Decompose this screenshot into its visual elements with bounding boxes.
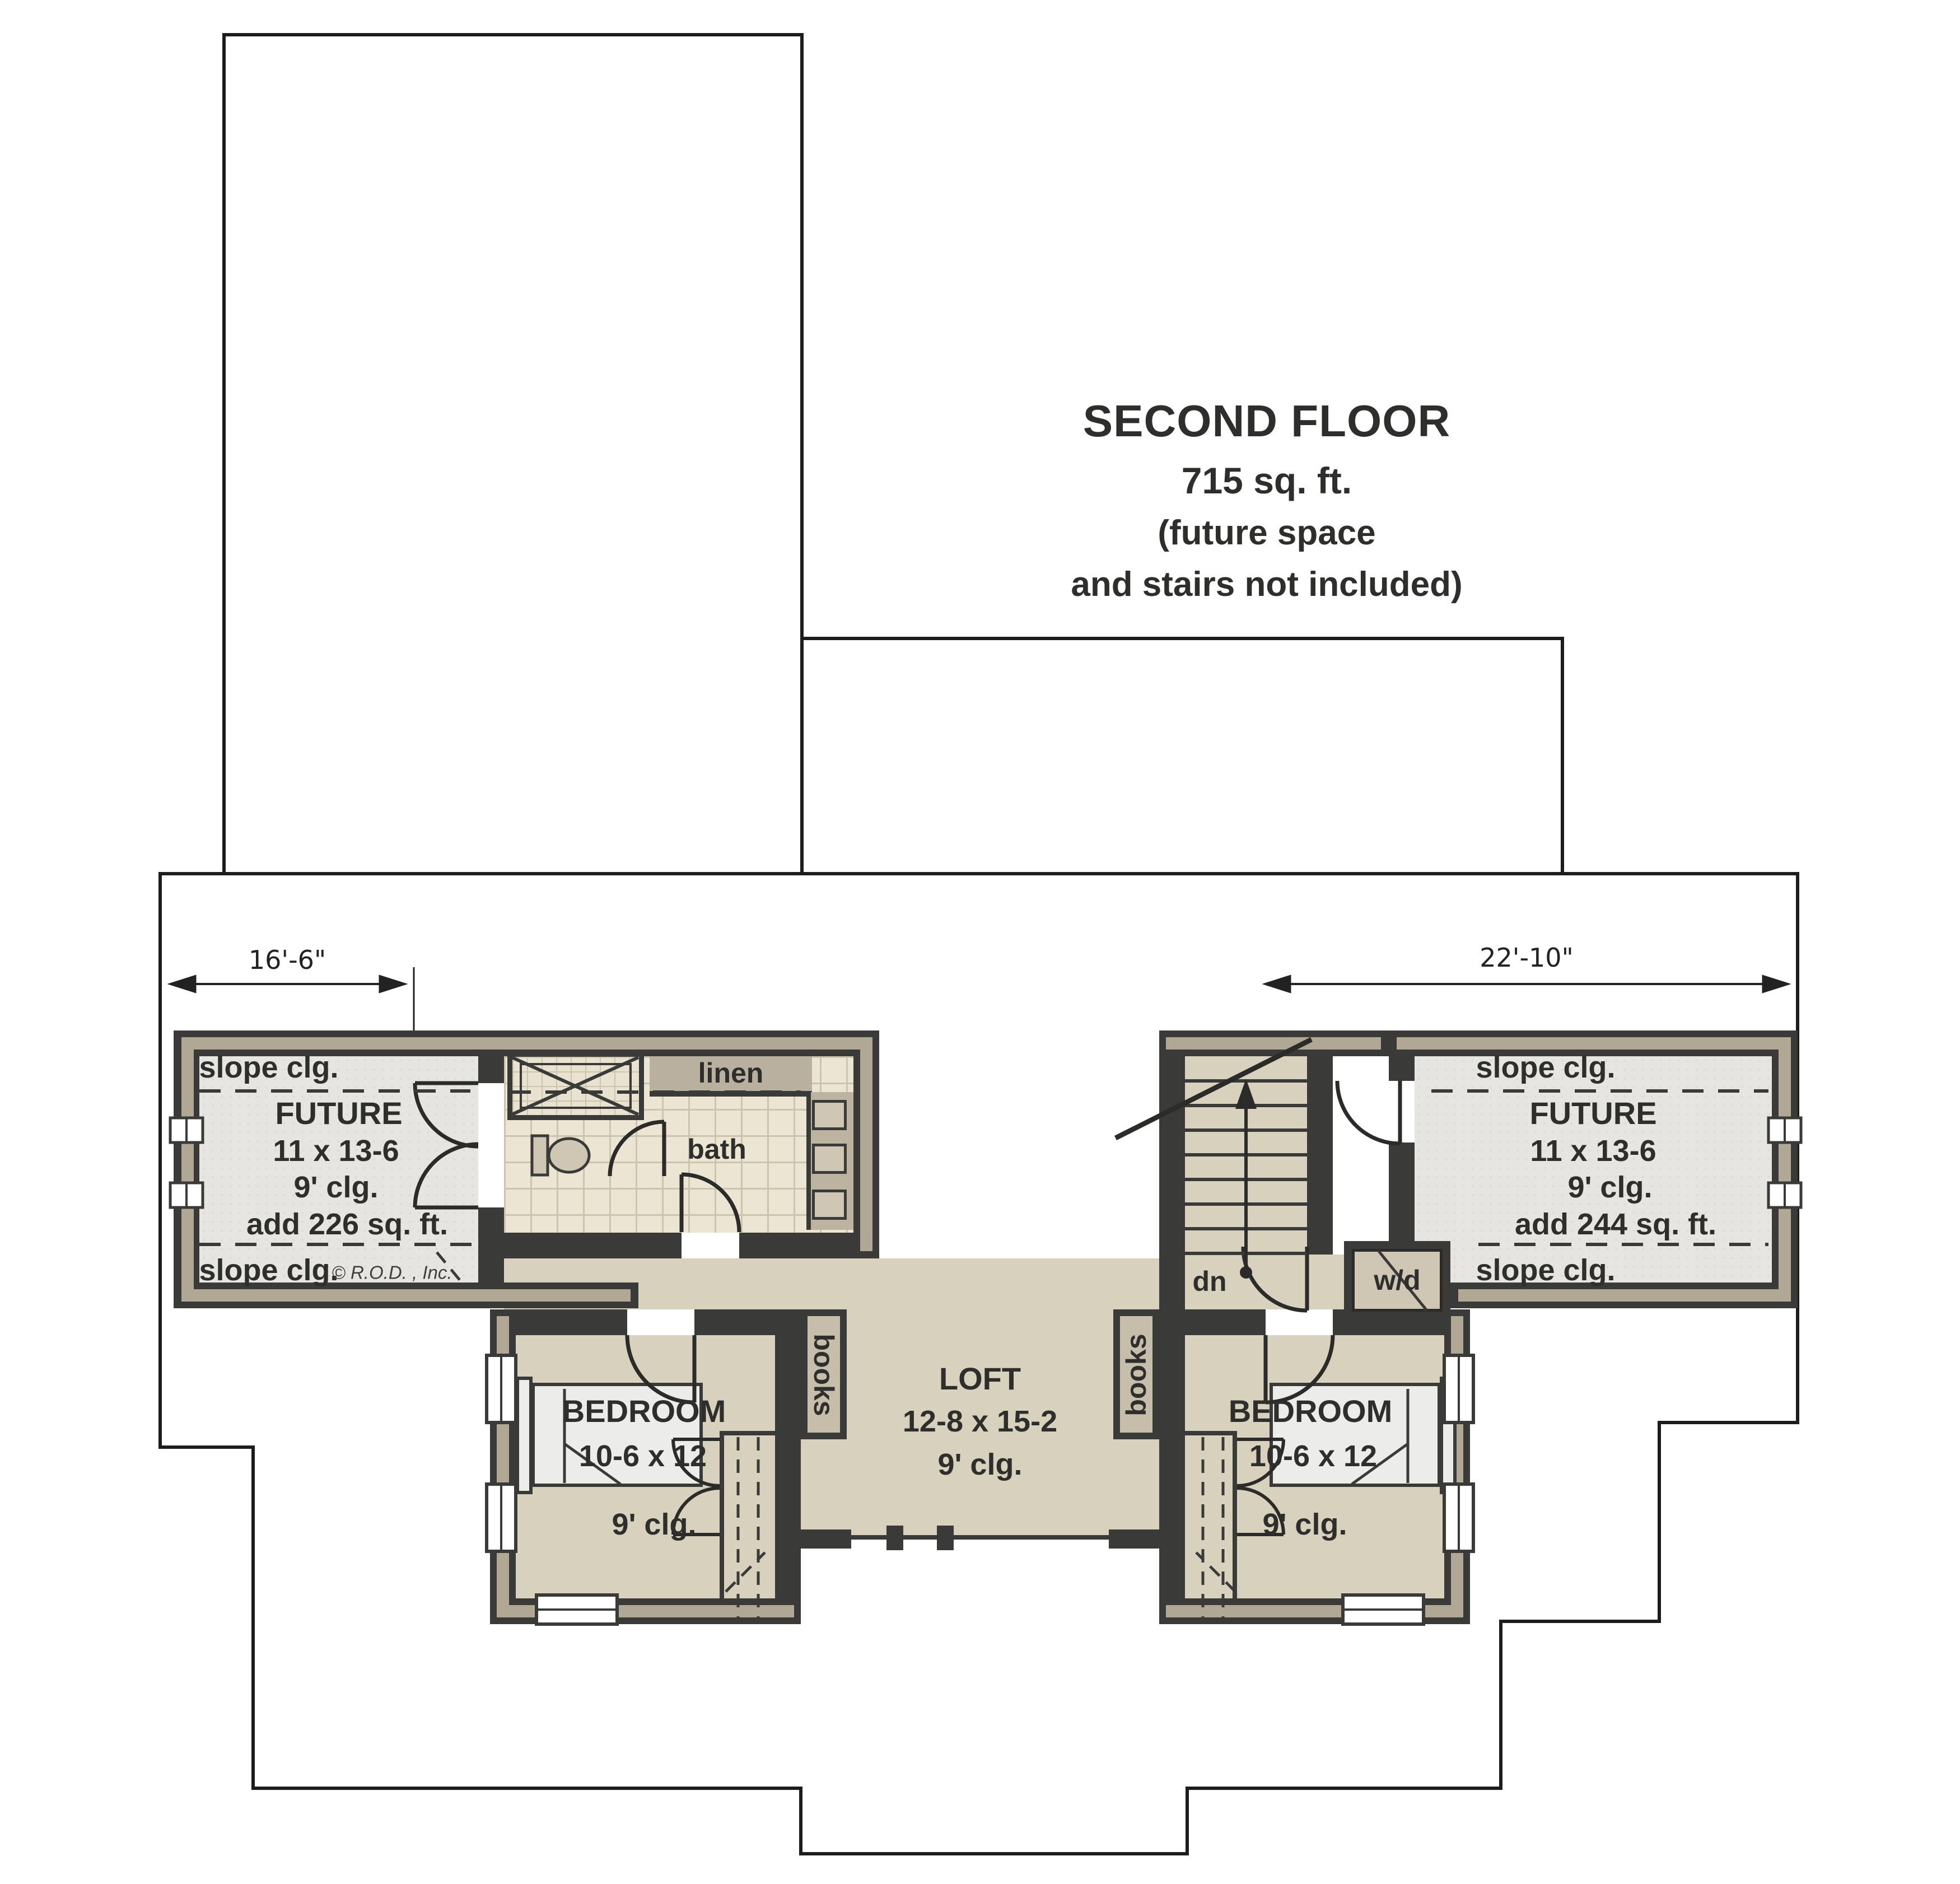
bath-label: bath	[687, 1135, 746, 1163]
door-future-left-double	[415, 1083, 478, 1207]
dimension-left-text: 16'-6"	[249, 947, 326, 973]
door-laundry	[1243, 1247, 1307, 1311]
bedroom-left-size: 10-6 x 12	[579, 1441, 707, 1471]
future-left-area: add 226 sq. ft.	[246, 1209, 448, 1239]
linen-label: linen	[698, 1059, 764, 1087]
loft-size: 12-8 x 15-2	[903, 1406, 1057, 1437]
door-bath-entry	[682, 1174, 739, 1232]
floor-plan-canvas: SECOND FLOOR 715 sq. ft. (future space a…	[0, 0, 1960, 1884]
loft-ceiling: 9' clg.	[938, 1449, 1023, 1480]
bedroom-right-size: 10-6 x 12	[1249, 1441, 1377, 1471]
door-future-right	[1337, 1081, 1400, 1144]
bedroom-left-name: BEDROOM	[562, 1396, 726, 1427]
door-bedroom-left	[627, 1335, 694, 1402]
future-right-area: add 244 sq. ft.	[1515, 1209, 1716, 1239]
copyright-note: © R.O.D. , Inc.	[332, 1263, 452, 1282]
bedroom-left-ceiling: 9' clg.	[612, 1509, 697, 1540]
future-left-slope-bottom: slope clg.	[199, 1255, 338, 1285]
future-left-slope-top: slope clg.	[199, 1052, 338, 1083]
dimension-right-text: 22'-10"	[1480, 945, 1573, 971]
bookshelf-left-label: books	[810, 1333, 838, 1416]
toilet	[532, 1136, 589, 1175]
shower-x-mark	[512, 1057, 638, 1114]
future-right-slope-bottom: slope clg.	[1476, 1255, 1615, 1285]
plan-area: 715 sq. ft.	[1182, 462, 1352, 499]
plan-title: SECOND FLOOR	[1083, 399, 1450, 444]
bookshelf-right-label: books	[1122, 1333, 1150, 1416]
loft-name: LOFT	[939, 1363, 1021, 1395]
future-right-name: FUTURE	[1529, 1098, 1656, 1129]
future-left-size: 11 x 13-6	[273, 1136, 399, 1166]
roof-slope-line	[1116, 1039, 1312, 1138]
bedroom-right-name: BEDROOM	[1229, 1396, 1392, 1427]
plan-note-line1: (future space	[1158, 516, 1375, 551]
attic-dash-lines	[437, 1252, 1235, 1620]
plan-note-line2: and stairs not included)	[1071, 567, 1462, 602]
door-bath-nook	[610, 1122, 664, 1176]
future-right-slope-top: slope clg.	[1476, 1052, 1615, 1083]
washer-dryer-label: w/d	[1374, 1266, 1420, 1294]
door-bedroom-right	[1266, 1335, 1333, 1402]
bedroom-right-ceiling: 9' clg.	[1263, 1509, 1347, 1540]
detail-layer	[0, 0, 1960, 1884]
stair-dn-label: dn	[1192, 1267, 1226, 1295]
future-left-name: FUTURE	[275, 1098, 402, 1129]
future-left-ceiling: 9' clg.	[294, 1172, 379, 1202]
future-right-ceiling: 9' clg.	[1568, 1172, 1653, 1202]
future-right-size: 11 x 13-6	[1530, 1136, 1656, 1166]
